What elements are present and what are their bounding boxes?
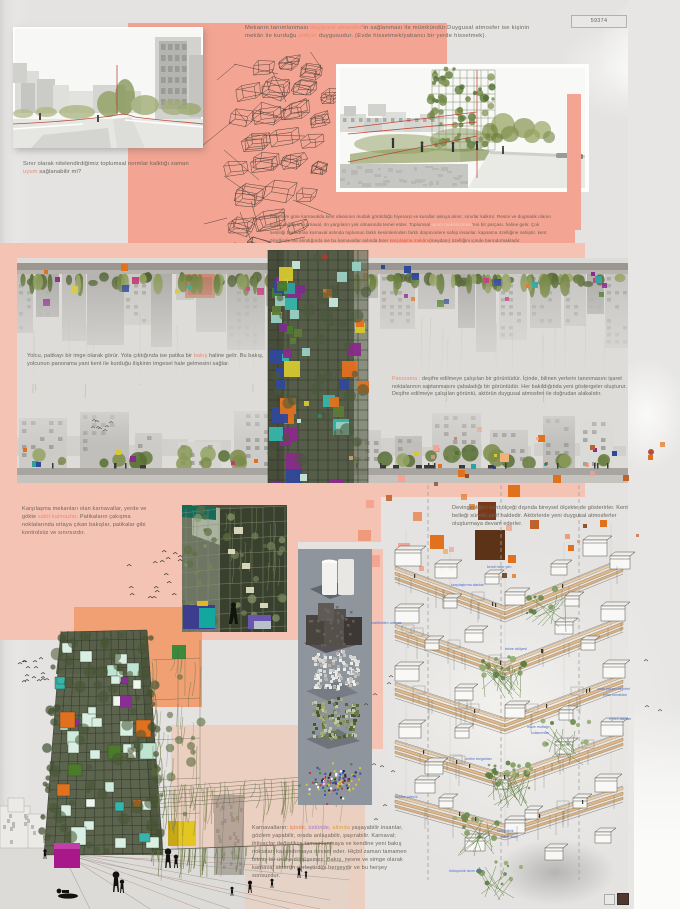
svg-text:kullanımları: kullanımları [531, 731, 549, 735]
svg-text:tekne atölyesi: tekne atölyesi [505, 647, 527, 651]
svg-text:müze mutfağı: müze mutfağı [527, 725, 549, 729]
svg-text:ortak yaşam birimleri: ortak yaşam birimleri [597, 687, 630, 691]
svg-text:kendi hayır yeri: kendi hayır yeri [487, 565, 512, 569]
svg-text:hidroponik: hidroponik [497, 829, 514, 833]
svg-text:hidroponik tarım alanı: hidroponik tarım alanı [449, 869, 484, 873]
svg-text:yolcu konakları: yolcu konakları [603, 693, 627, 697]
svg-text:karşılaştırma alanları: karşılaştırma alanları [451, 583, 484, 587]
svg-text:üretim tezgahları: üretim tezgahları [465, 757, 492, 761]
svg-text:tarım alanı: tarım alanı [501, 835, 518, 839]
svg-text:deşifre odechi: deşifre odechi [395, 795, 418, 799]
svg-text:mahfedilen odunca: mahfedilen odunca [371, 621, 401, 625]
svg-text:eğitim alanları: eğitim alanları [609, 717, 631, 721]
